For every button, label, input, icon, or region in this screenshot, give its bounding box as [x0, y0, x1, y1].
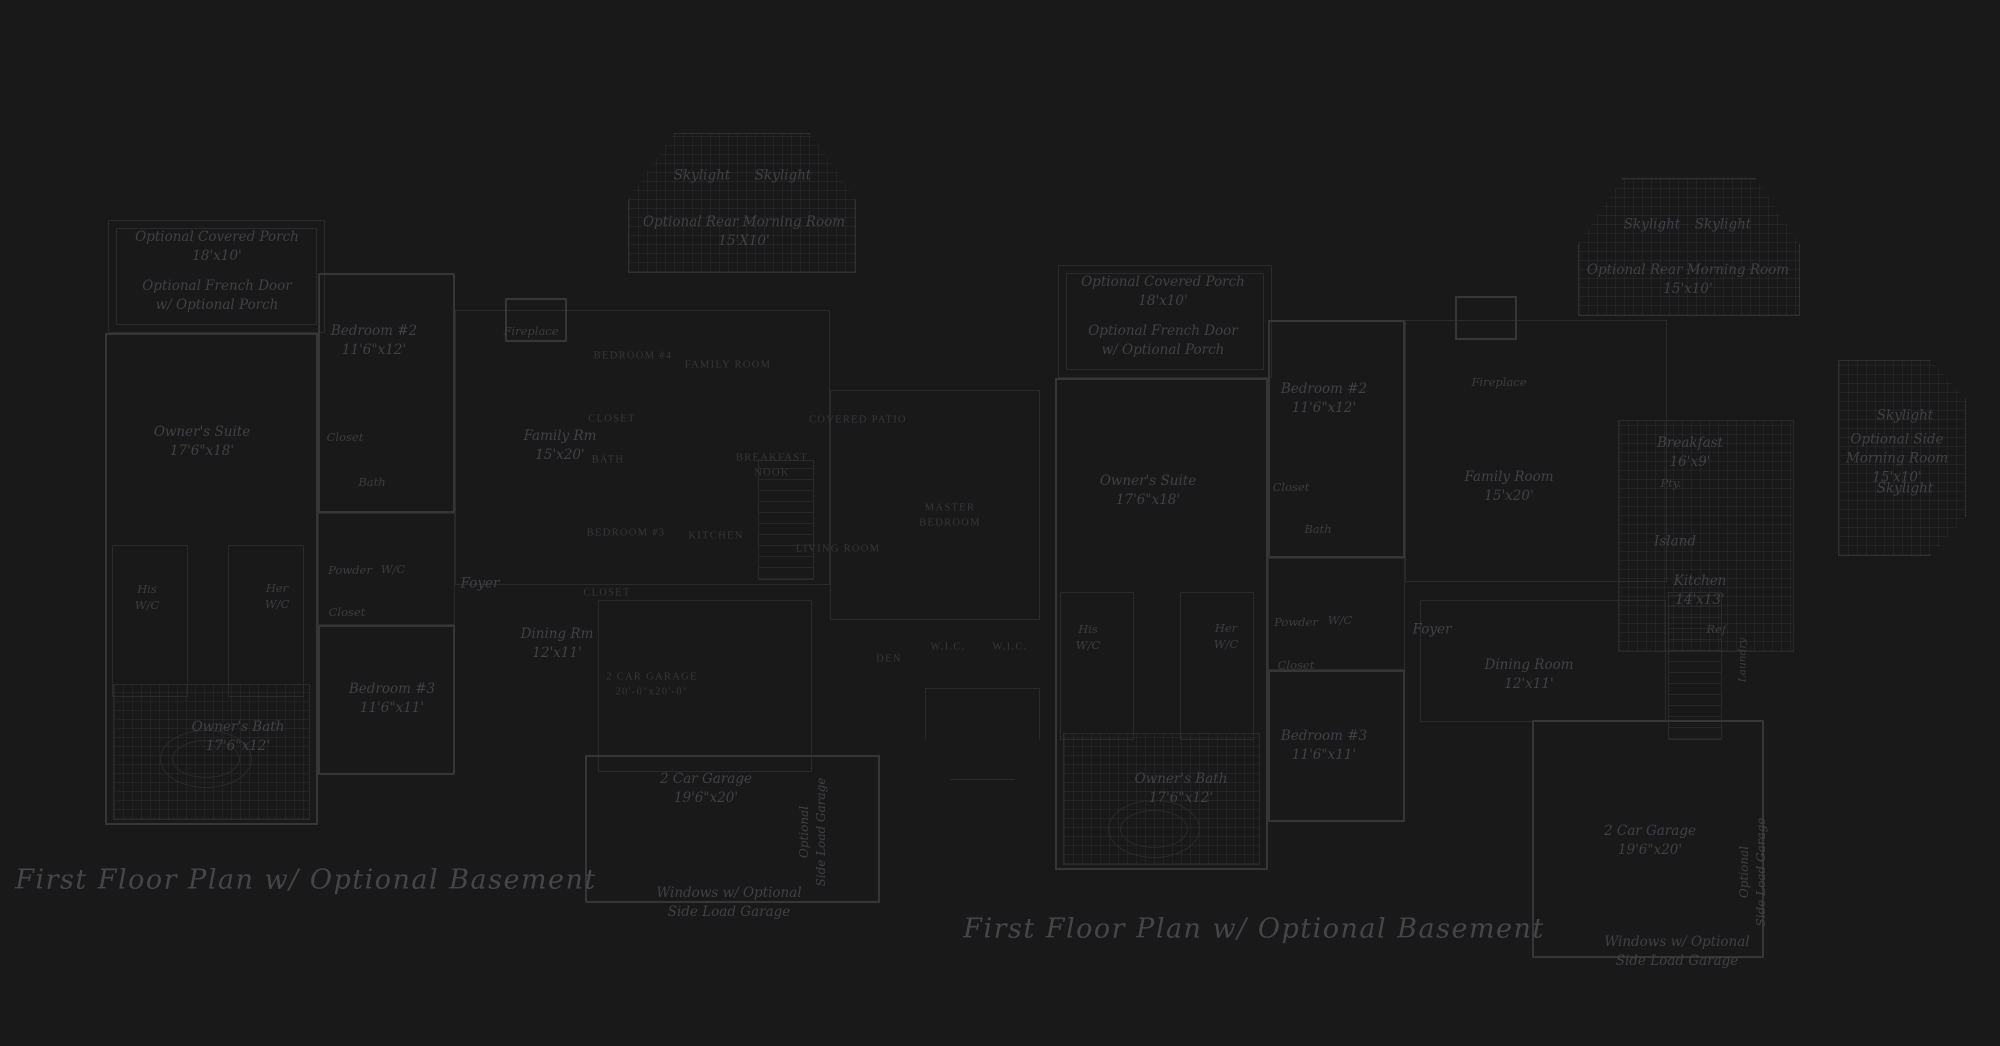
right-fireplace [1455, 296, 1517, 340]
right-label-optional-covered-porch: Optional Covered Porch18'x10' [1081, 273, 1245, 311]
left-label-optional-rear-morning-room: Optional Rear Morning Room15'X10' [643, 213, 845, 251]
overlay-label-kitchen: KITCHEN [688, 530, 743, 545]
left-label-optional-french-door: Optional French Doorw/ Optional Porch [142, 277, 292, 315]
right-label-optional-rear-morning-room: Optional Rear Morning Room15'x10' [1587, 261, 1789, 299]
left-label-fireplace: Fireplace [503, 323, 558, 339]
right-label-2-car-garage: 2 Car Garage19'6"x20' [1604, 822, 1696, 860]
left-label-skylight: Skylight [674, 167, 730, 186]
overlay-label-breakfast: BREAKFASTNOOK [736, 451, 808, 480]
right-label-optional: OptionalSide Load Garage [1736, 818, 1770, 927]
left-bay-window [925, 688, 1040, 780]
left-morning-room [628, 133, 856, 273]
left-label-optional: OptionalSide Load Garage [796, 778, 830, 887]
right-label-ref: Ref. [1707, 621, 1730, 637]
plan-title-right: First Floor Plan w/ Optional Basement [963, 914, 1545, 945]
plan-title-left: First Floor Plan w/ Optional Basement [15, 865, 597, 896]
right-label-w-c: W/C [1328, 612, 1353, 628]
left-label-windows-w-optional: Windows w/ OptionalSide Load Garage [656, 884, 801, 922]
right-label-skylight: Skylight [1877, 407, 1933, 426]
right-label-foyer: Foyer [1413, 621, 1452, 640]
right-label-laundry: Laundry [1736, 638, 1751, 682]
right-label-owner-s-bath: Owner's Bath17'6"x12' [1135, 770, 1228, 808]
right-tub-basin [1120, 810, 1188, 848]
left-label-w-c: W/C [381, 561, 406, 577]
left-label-her: HerW/C [265, 580, 290, 612]
overlay-label-closet: CLOSET [583, 587, 630, 602]
right-label-windows-w-optional: Windows w/ OptionalSide Load Garage [1604, 933, 1749, 971]
overlay-label-w-i-c: W.I.C. [992, 641, 1027, 656]
right-label-fireplace: Fireplace [1471, 374, 1526, 390]
right-label-dining-room: Dining Room12'x11' [1484, 656, 1573, 694]
overlay-label-master: MASTERBEDROOM [919, 501, 981, 530]
left-label-his: HisW/C [135, 581, 160, 613]
floorplan-sheet: Optional Covered Porch18'x10'Optional Fr… [0, 0, 2000, 1046]
left-label-owner-s-bath: Owner's Bath17'6"x12' [192, 718, 285, 756]
right-bedroom2 [1268, 320, 1405, 558]
left-label-powder: Powder [328, 562, 372, 578]
overlay-label-family-room: FAMILY ROOM [685, 359, 771, 374]
left-label-closet: Closet [327, 429, 364, 445]
right-label-skylight: Skylight [1624, 216, 1680, 235]
right-label-his: HisW/C [1076, 621, 1101, 653]
left-label-dining-rm: Dining Rm12'x11' [521, 625, 594, 663]
right-label-family-room: Family Room15'x20' [1464, 468, 1553, 506]
right-label-skylight: Skylight [1877, 480, 1933, 499]
left-label-bath: Bath [358, 474, 385, 490]
right-label-skylight: Skylight [1695, 216, 1751, 235]
right-her-wc [1180, 592, 1254, 740]
overlay-label-2-car-garage: 2 CAR GARAGE20'-0"x20'-0" [606, 670, 697, 699]
left-bedroom2 [318, 273, 455, 513]
left-label-foyer: Foyer [461, 575, 500, 594]
left-label-closet: Closet [329, 604, 366, 620]
overlay-label-bedroom-4: BEDROOM #4 [594, 350, 673, 365]
left-label-skylight: Skylight [755, 167, 811, 186]
right-label-island: Island [1654, 533, 1696, 552]
left-label-bedroom-2: Bedroom #211'6"x12' [331, 322, 417, 360]
right-his-wc [1060, 592, 1134, 740]
left-label-2-car-garage: 2 Car Garage19'6"x20' [660, 770, 752, 808]
right-stairs [1668, 592, 1722, 740]
overlay-label-covered-patio: COVERED PATIO [809, 414, 907, 429]
right-label-bath: Bath [1304, 521, 1331, 537]
right-label-closet: Closet [1273, 479, 1310, 495]
overlay-label-den: DEN [876, 653, 901, 668]
overlay-label-closet: CLOSET [588, 413, 635, 428]
left-label-optional-covered-porch: Optional Covered Porch18'x10' [135, 228, 299, 266]
overlay-label-living-room: LIVING ROOM [796, 543, 881, 558]
overlay-label-w-i-c: W.I.C. [930, 641, 965, 656]
left-label-bedroom-3: Bedroom #311'6"x11' [349, 680, 435, 718]
left-label-family-rm: Family Rm15'x20' [524, 427, 597, 465]
right-label-closet: Closet [1278, 657, 1315, 673]
left-label-owner-s-suite: Owner's Suite17'6"x18' [154, 423, 250, 461]
right-label-bedroom-3: Bedroom #311'6"x11' [1281, 727, 1367, 765]
right-label-optional-french-door: Optional French Doorw/ Optional Porch [1088, 322, 1238, 360]
overlay-label-bedroom-3: BEDROOM #3 [587, 527, 666, 542]
right-label-pty: Pty. [1661, 475, 1682, 491]
right-label-kitchen: Kitchen14'x13' [1674, 572, 1727, 610]
left-his-wc [112, 545, 188, 697]
right-label-powder: Powder [1274, 614, 1318, 630]
left-her-wc [228, 545, 304, 697]
right-label-owner-s-suite: Owner's Suite17'6"x18' [1100, 472, 1196, 510]
overlay-label-bath: BATH [592, 454, 625, 469]
right-label-bedroom-2: Bedroom #211'6"x12' [1281, 380, 1367, 418]
right-label-breakfast: Breakfast16'x9' [1657, 434, 1723, 472]
right-label-her: HerW/C [1214, 620, 1239, 652]
